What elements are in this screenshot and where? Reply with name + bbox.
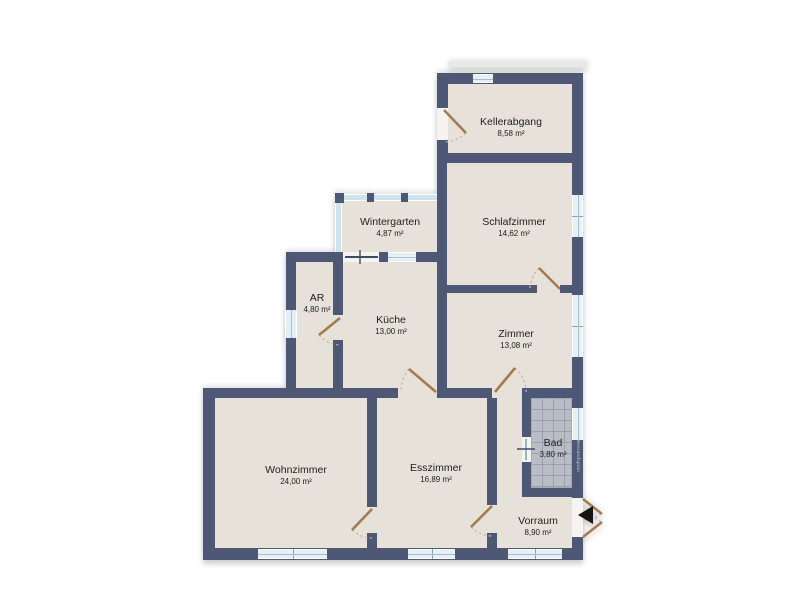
- room-name: Schlafzimmer: [482, 216, 546, 228]
- wall: [379, 252, 388, 262]
- door-leaf: [583, 522, 602, 537]
- wall: [487, 533, 497, 548]
- room-label-vorraum: Vorraum 8,90 m²: [518, 515, 558, 537]
- glass-wall: [335, 201, 342, 252]
- glass-post: [367, 193, 374, 202]
- glass-wall: [335, 194, 437, 201]
- glass-post: [401, 193, 408, 202]
- room-label-zimmer: Zimmer 13,08 m²: [498, 328, 534, 350]
- room-area: 4,80 m²: [303, 305, 330, 314]
- room-area: 8,90 m²: [518, 528, 558, 537]
- room-name: Vorraum: [518, 515, 558, 527]
- room-area: 3,80 m²: [539, 450, 566, 459]
- room-label-kellerabgang: Kellerabgang 8,58 m²: [480, 116, 542, 138]
- glass-post: [335, 193, 344, 203]
- room-label-ar: AR 4,80 m²: [303, 292, 330, 314]
- room-name: Wintergarten: [360, 216, 420, 228]
- room-area: 14,62 m²: [482, 229, 546, 238]
- room-name: AR: [303, 292, 330, 304]
- window-mullion: [572, 216, 583, 217]
- window: [572, 195, 583, 237]
- wall: [572, 237, 583, 295]
- room-label-wohnzimmer: Wohnzimmer 24,00 m²: [265, 464, 327, 486]
- door-opening: [522, 437, 531, 462]
- window: [285, 310, 297, 338]
- door-swing-arc: [585, 516, 601, 522]
- plan-shadow: [448, 62, 588, 67]
- wall: [333, 262, 343, 315]
- window: [572, 408, 583, 440]
- wall: [286, 262, 296, 310]
- floor-plan: Bestandsplan: [0, 0, 800, 600]
- window-mullion: [432, 549, 433, 559]
- room-floor-ar: [291, 257, 338, 393]
- window: [408, 549, 455, 559]
- wall: [203, 388, 398, 398]
- window: [388, 252, 416, 262]
- room-name: Küche: [375, 314, 407, 326]
- room-area: 13,00 m²: [375, 327, 407, 336]
- wall: [572, 84, 583, 163]
- wall: [367, 533, 377, 548]
- room-area: 16,89 m²: [410, 475, 462, 484]
- door-opening: [343, 252, 379, 262]
- window: [508, 549, 562, 559]
- wall: [437, 388, 492, 398]
- room-name: Esszimmer: [410, 462, 462, 474]
- room-label-schlafzimmer: Schlafzimmer 14,62 m²: [482, 216, 546, 238]
- window: [572, 295, 583, 357]
- room-label-esszimmer: Esszimmer 16,89 m²: [410, 462, 462, 484]
- wall: [560, 285, 572, 293]
- wall: [572, 163, 583, 195]
- watermark-text: Bestandsplan: [572, 440, 583, 492]
- window-mullion: [572, 326, 583, 327]
- room-area: 8,58 m²: [480, 129, 542, 138]
- wall: [286, 252, 343, 262]
- room-name: Zimmer: [498, 328, 534, 340]
- wall: [447, 285, 537, 293]
- room-name: Wohnzimmer: [265, 464, 327, 476]
- wall: [572, 537, 583, 560]
- door-swing-arc: [585, 513, 601, 520]
- wall: [437, 84, 448, 108]
- floor-plan-page: Bestandsplan: [0, 0, 800, 600]
- wall: [522, 392, 531, 437]
- room-label-wintergarten: Wintergarten 4,87 m²: [360, 216, 420, 238]
- wall: [203, 398, 215, 560]
- entrance-opening: [572, 498, 583, 537]
- wall: [367, 398, 377, 507]
- room-area: 13,08 m²: [498, 341, 534, 350]
- room-area: 24,00 m²: [265, 477, 327, 486]
- room-name: Kellerabgang: [480, 116, 542, 128]
- door-leaf: [583, 499, 602, 514]
- room-area: 4,87 m²: [360, 229, 420, 238]
- room-label-kueche: Küche 13,00 m²: [375, 314, 407, 336]
- room-name: Bad: [539, 437, 566, 449]
- room-label-bad: Bad 3,80 m²: [539, 437, 566, 459]
- wall: [487, 398, 497, 505]
- wall: [522, 388, 583, 398]
- wall: [437, 153, 583, 163]
- window-mullion: [535, 549, 536, 559]
- window: [473, 74, 493, 83]
- window-mullion: [293, 549, 294, 559]
- window: [258, 549, 327, 559]
- wall: [437, 73, 583, 84]
- wall: [437, 163, 447, 398]
- wall: [416, 252, 447, 262]
- door-opening: [437, 108, 448, 140]
